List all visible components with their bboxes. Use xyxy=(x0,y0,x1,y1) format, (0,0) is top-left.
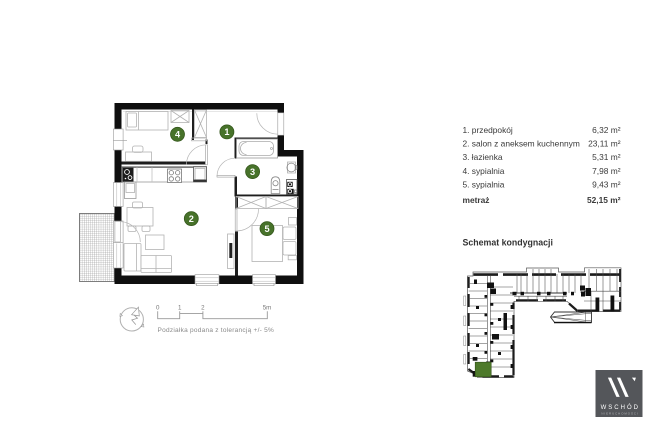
svg-text:metraż: metraż xyxy=(463,195,490,205)
svg-text:2. salon z aneksem kuchennym: 2. salon z aneksem kuchennym xyxy=(463,139,580,149)
svg-text:4. sypialnia: 4. sypialnia xyxy=(463,166,505,176)
svg-text:WSCHÓD: WSCHÓD xyxy=(601,404,640,411)
svg-text:2: 2 xyxy=(189,214,194,224)
svg-text:Podziałka podana z tolerancją: Podziałka podana z tolerancją +/- 5% xyxy=(158,327,275,334)
svg-text:Schemat kondygnacji: Schemat kondygnacji xyxy=(463,238,553,248)
svg-text:0: 0 xyxy=(156,305,160,312)
svg-text:52,15 m²: 52,15 m² xyxy=(587,195,621,205)
svg-text:2: 2 xyxy=(201,305,205,312)
svg-text:5,31 m²: 5,31 m² xyxy=(592,152,621,162)
svg-text:3: 3 xyxy=(250,167,255,177)
svg-text:4: 4 xyxy=(175,130,181,140)
svg-text:23,11 m²: 23,11 m² xyxy=(588,139,621,149)
svg-text:6,32 m²: 6,32 m² xyxy=(592,125,621,135)
svg-text:3. łazienka: 3. łazienka xyxy=(463,152,503,162)
svg-text:7,98 m²: 7,98 m² xyxy=(592,166,621,176)
svg-text:1. przedpokój: 1. przedpokój xyxy=(463,125,513,135)
svg-text:5m: 5m xyxy=(263,305,272,312)
svg-text:1: 1 xyxy=(178,305,182,312)
svg-text:5: 5 xyxy=(264,224,269,234)
svg-text:1: 1 xyxy=(224,127,229,137)
svg-text:NIERUCHOMOŚCI: NIERUCHOMOŚCI xyxy=(601,410,638,415)
svg-text:5. sypialnia: 5. sypialnia xyxy=(463,180,505,190)
svg-text:9,43 m²: 9,43 m² xyxy=(592,180,621,190)
